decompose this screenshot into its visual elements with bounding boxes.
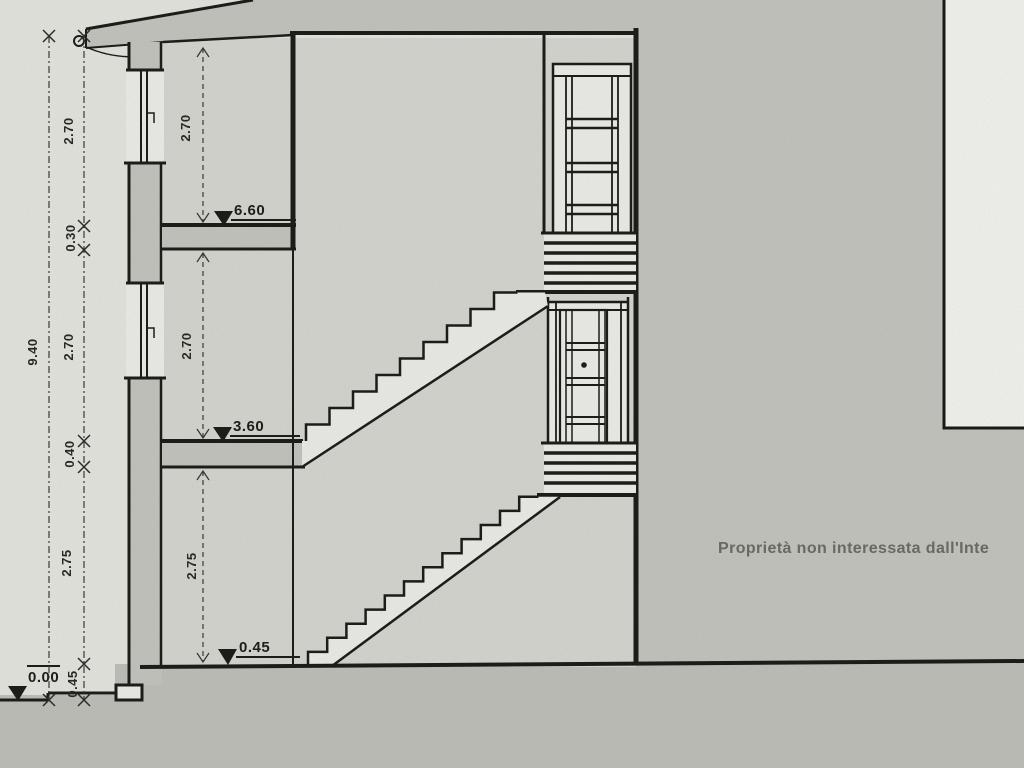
section-svg: 6.60 3.60 0.45 0.00 2.70 2.70 2.75 9.40 — [0, 0, 1024, 768]
scan-noise-overlay — [0, 0, 1024, 768]
scanned-section-drawing: 6.60 3.60 0.45 0.00 2.70 2.70 2.75 9.40 — [0, 0, 1024, 768]
